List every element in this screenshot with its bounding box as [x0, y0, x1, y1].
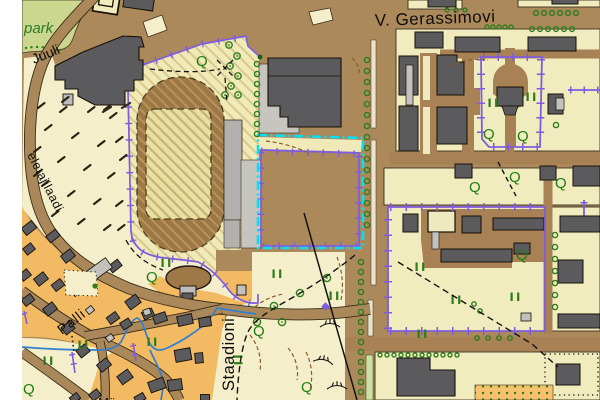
svg-text:Q: Q: [146, 269, 158, 286]
svg-text:Q: Q: [23, 381, 35, 398]
svg-text:Staadioni: Staadioni: [220, 318, 238, 391]
svg-text:Q: Q: [483, 126, 495, 143]
svg-text:Q: Q: [253, 323, 265, 340]
svg-text:Q: Q: [509, 169, 521, 186]
svg-text:park: park: [23, 20, 55, 37]
svg-text:Mäe: Mäe: [98, 395, 123, 400]
svg-text:Q: Q: [516, 247, 528, 264]
svg-text:Q: Q: [469, 179, 481, 196]
svg-text:Q: Q: [555, 175, 567, 192]
svg-text:Q: Q: [517, 128, 529, 145]
svg-text:Q: Q: [196, 53, 208, 70]
